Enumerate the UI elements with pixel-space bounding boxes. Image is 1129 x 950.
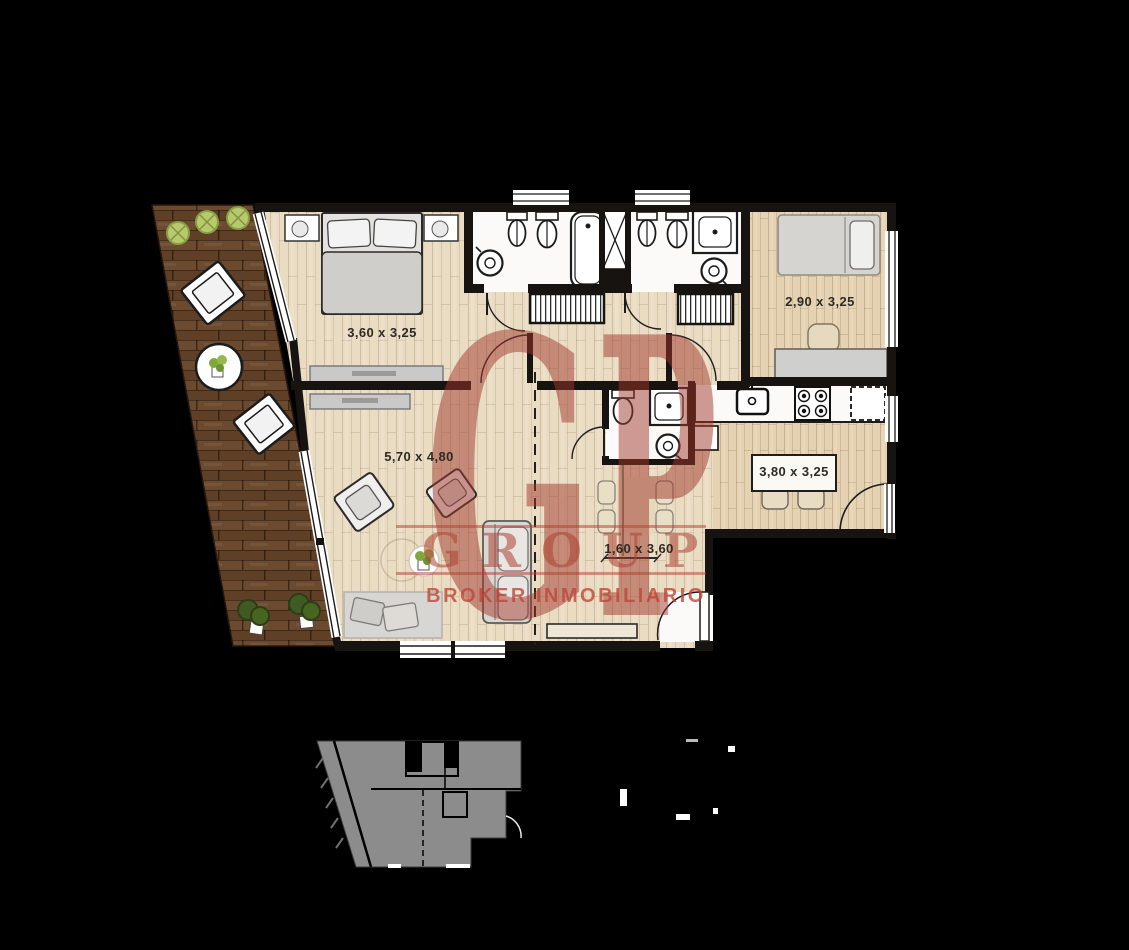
bedroom-2-window <box>885 231 898 347</box>
toilet-icon <box>666 212 688 248</box>
bathroom-2-window <box>635 190 690 205</box>
watermark-letter-g: G <box>424 255 595 707</box>
dimension-label-hall: 1,60 x 3,60 <box>604 541 673 556</box>
bathroom-1-window <box>513 190 569 205</box>
desk-chair <box>808 324 839 352</box>
floor-plan-drawing: G P GROUP BROKER INMOBILIARIO <box>0 0 1129 950</box>
watermark-letter-p: P <box>596 254 718 706</box>
toilet-icon <box>536 212 558 248</box>
watermark-group-text: GROUP <box>422 524 718 579</box>
dimension-label-kitchen-dining: 3,80 x 3,25 <box>759 464 828 479</box>
floor-plan: G P GROUP BROKER INMOBILIARIO <box>0 0 1129 950</box>
single-bed <box>778 215 880 275</box>
watermark-broker-text: BROKER INMOBILIARIO <box>426 585 706 607</box>
key-plan-neighbour-specks <box>620 739 735 820</box>
double-bed <box>322 213 422 314</box>
desk <box>775 349 887 379</box>
fridge <box>851 387 885 420</box>
bidet-icon <box>507 212 527 246</box>
shower-icon <box>693 211 737 253</box>
kitchen-window <box>885 396 898 442</box>
dimension-label-bedroom-1: 3,60 x 3,25 <box>347 325 416 340</box>
watermark: G P GROUP BROKER INMOBILIARIO <box>396 254 718 707</box>
kitchen-sink <box>737 386 768 414</box>
dimension-label-bedroom-2: 2,90 x 3,25 <box>785 294 854 309</box>
terrace-table <box>196 344 242 390</box>
stove <box>795 387 830 421</box>
bidet-icon <box>637 212 657 246</box>
dimension-label-living-room: 5,70 x 4,80 <box>384 449 453 464</box>
key-plan <box>316 739 735 868</box>
